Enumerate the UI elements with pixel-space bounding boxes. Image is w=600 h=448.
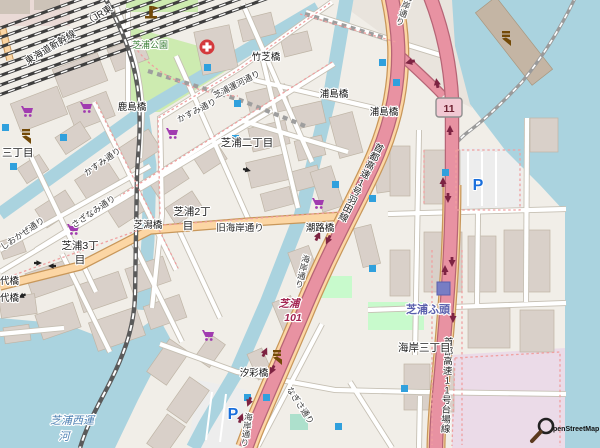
map-canvas[interactable]: 11 東海道新幹線 （JR東 芝浦公園 竹芝橋 鹿島橋 浦島橋 浦島橋 芝浦二丁… <box>0 0 600 448</box>
label-urashima-bridge: 浦島橋 <box>320 88 349 100</box>
parking-icon: P <box>473 177 484 194</box>
label-shibaura-2chome: 芝浦二丁目 <box>221 136 274 149</box>
label-shibaura-3: 芝浦3丁 <box>61 239 98 252</box>
route-shield-label: 11 <box>443 103 454 115</box>
osm-attribution-text: penStreetMap <box>553 426 599 433</box>
label-takeshiba-bridge: 竹芝橋 <box>252 51 281 63</box>
label-shibaura-3: 目 <box>75 254 86 266</box>
label-dai-bridge: 代橋 <box>0 292 20 304</box>
label-shibaura-futo-station: 芝浦ふ頭 <box>406 302 451 316</box>
label-shibaura-2: 目 <box>183 220 194 232</box>
label-shioji-bridge: 潮路橋 <box>306 222 335 234</box>
label-exit-number: 101 <box>284 312 302 324</box>
label-dai-bridge: 代橋 <box>0 275 20 287</box>
station-icon <box>437 282 450 295</box>
label-shibagata-bridge: 芝潟橋 <box>134 219 163 231</box>
label-shibaura-park: 芝浦公園 <box>132 39 168 50</box>
label-sanchome: 三丁目 <box>2 147 34 159</box>
label-kaigan-3chome: 海岸三丁目 <box>398 341 451 354</box>
parking-icon: P <box>228 406 239 423</box>
hospital-icon <box>200 40 215 55</box>
label-shibaura-2: 芝浦2丁 <box>173 205 210 218</box>
label-shiosai-bridge: 汐彩橋 <box>240 367 269 379</box>
label-kyu-kaigan-dori: 旧海岸通り <box>216 222 264 234</box>
parking-area <box>452 148 522 210</box>
map-viewport[interactable]: 11 東海道新幹線 （JR東 芝浦公園 竹芝橋 鹿島橋 浦島橋 浦島橋 芝浦二丁… <box>0 0 600 448</box>
label-exit-name: 芝浦 <box>279 297 302 310</box>
label-urashima-bridge: 浦島橋 <box>370 106 399 118</box>
route-shield-11: 11 <box>436 98 462 117</box>
label-kashima-bridge: 鹿島橋 <box>118 101 147 113</box>
label-nishi-canal: 芝浦西運 <box>50 414 96 427</box>
